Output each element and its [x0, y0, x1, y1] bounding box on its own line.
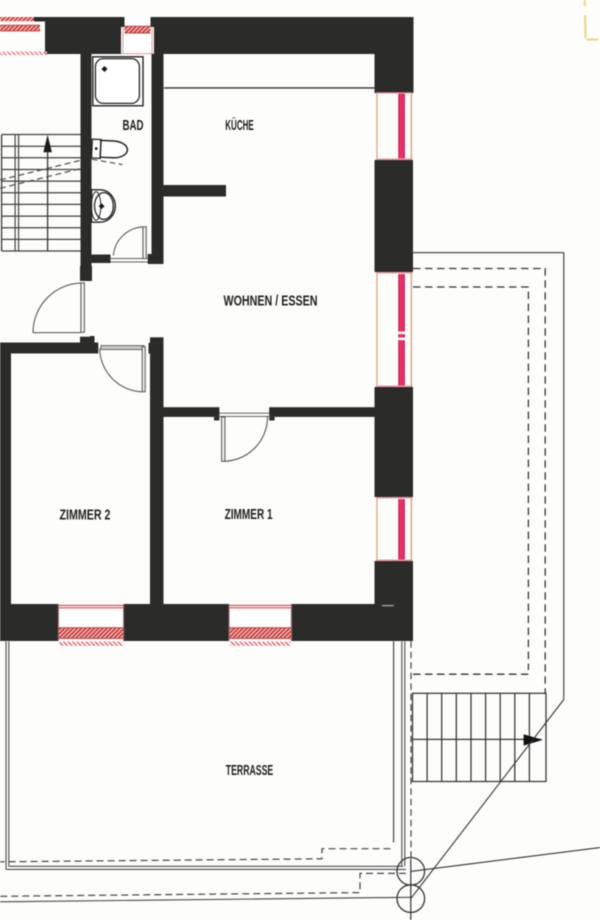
svg-text:KÜCHE: KÜCHE: [225, 117, 254, 134]
svg-text:TERRASSE: TERRASSE: [226, 763, 274, 779]
svg-text:BAD: BAD: [123, 118, 144, 134]
svg-text:ZIMMER 1: ZIMMER 1: [225, 507, 273, 523]
svg-text:WOHNEN / ESSEN: WOHNEN / ESSEN: [224, 294, 318, 310]
svg-text:ZIMMER 2: ZIMMER 2: [60, 508, 111, 524]
